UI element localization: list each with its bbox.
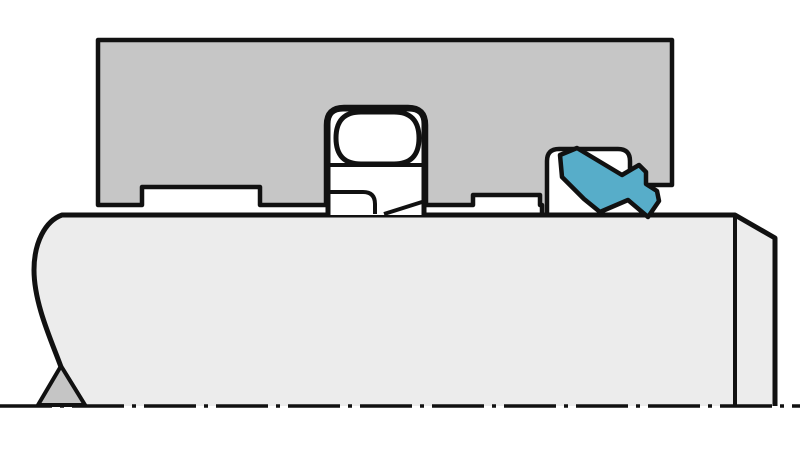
shaft-body (34, 215, 775, 406)
diagram-stage (0, 0, 800, 450)
diagram-canvas (0, 0, 800, 450)
bearing-ball (336, 112, 419, 164)
